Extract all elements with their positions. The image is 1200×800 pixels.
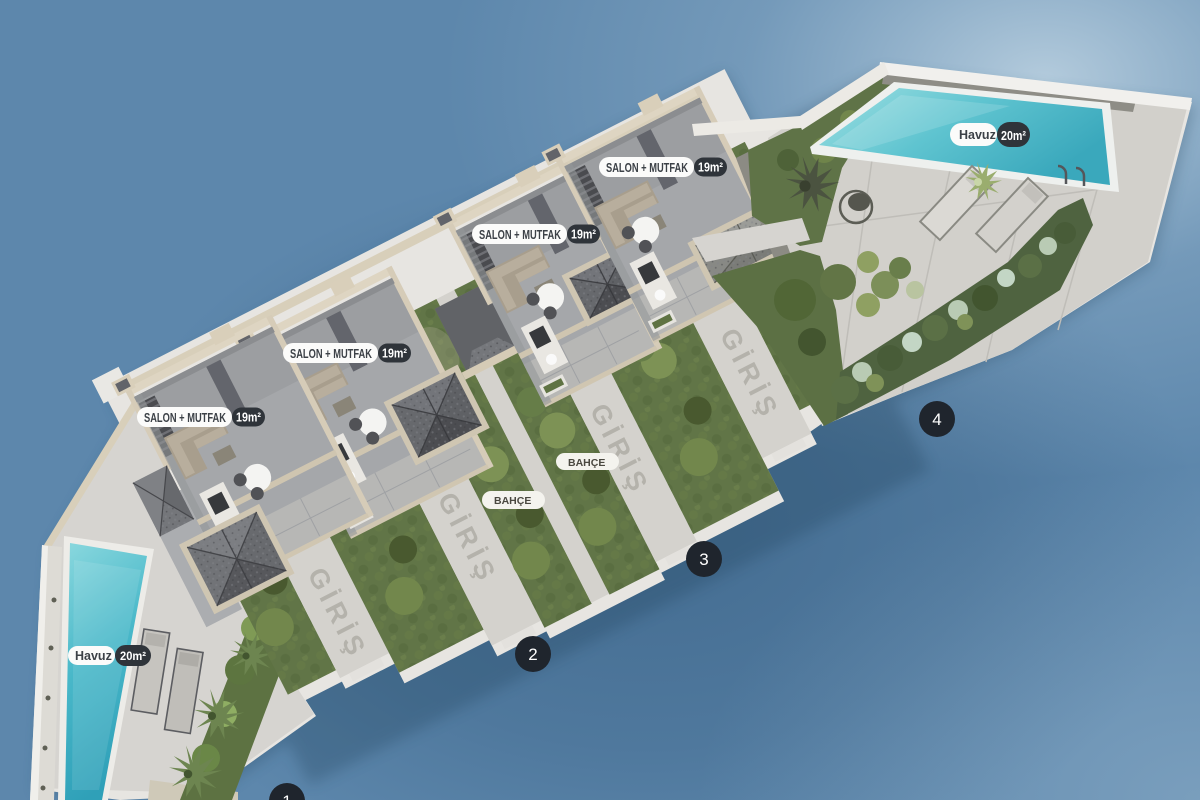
- svg-text:1: 1: [282, 792, 291, 800]
- svg-text:BAHÇE: BAHÇE: [568, 457, 605, 469]
- svg-text:19m²: 19m²: [571, 228, 596, 242]
- svg-text:SALON + MUTFAK: SALON + MUTFAK: [606, 160, 688, 175]
- svg-text:SALON + MUTFAK: SALON + MUTFAK: [144, 410, 226, 425]
- svg-text:2: 2: [528, 645, 537, 664]
- svg-text:20m²: 20m²: [1001, 129, 1026, 143]
- svg-text:20m²: 20m²: [120, 649, 146, 663]
- svg-text:3: 3: [699, 550, 708, 569]
- svg-text:SALON + MUTFAK: SALON + MUTFAK: [290, 346, 372, 361]
- svg-text:4: 4: [932, 410, 941, 429]
- svg-text:Havuz: Havuz: [75, 649, 112, 663]
- svg-text:19m²: 19m²: [382, 347, 407, 361]
- svg-text:19m²: 19m²: [236, 411, 261, 425]
- svg-text:BAHÇE: BAHÇE: [494, 495, 531, 507]
- svg-text:SALON + MUTFAK: SALON + MUTFAK: [479, 227, 561, 242]
- svg-text:19m²: 19m²: [698, 161, 723, 175]
- svg-text:Havuz: Havuz: [959, 128, 996, 142]
